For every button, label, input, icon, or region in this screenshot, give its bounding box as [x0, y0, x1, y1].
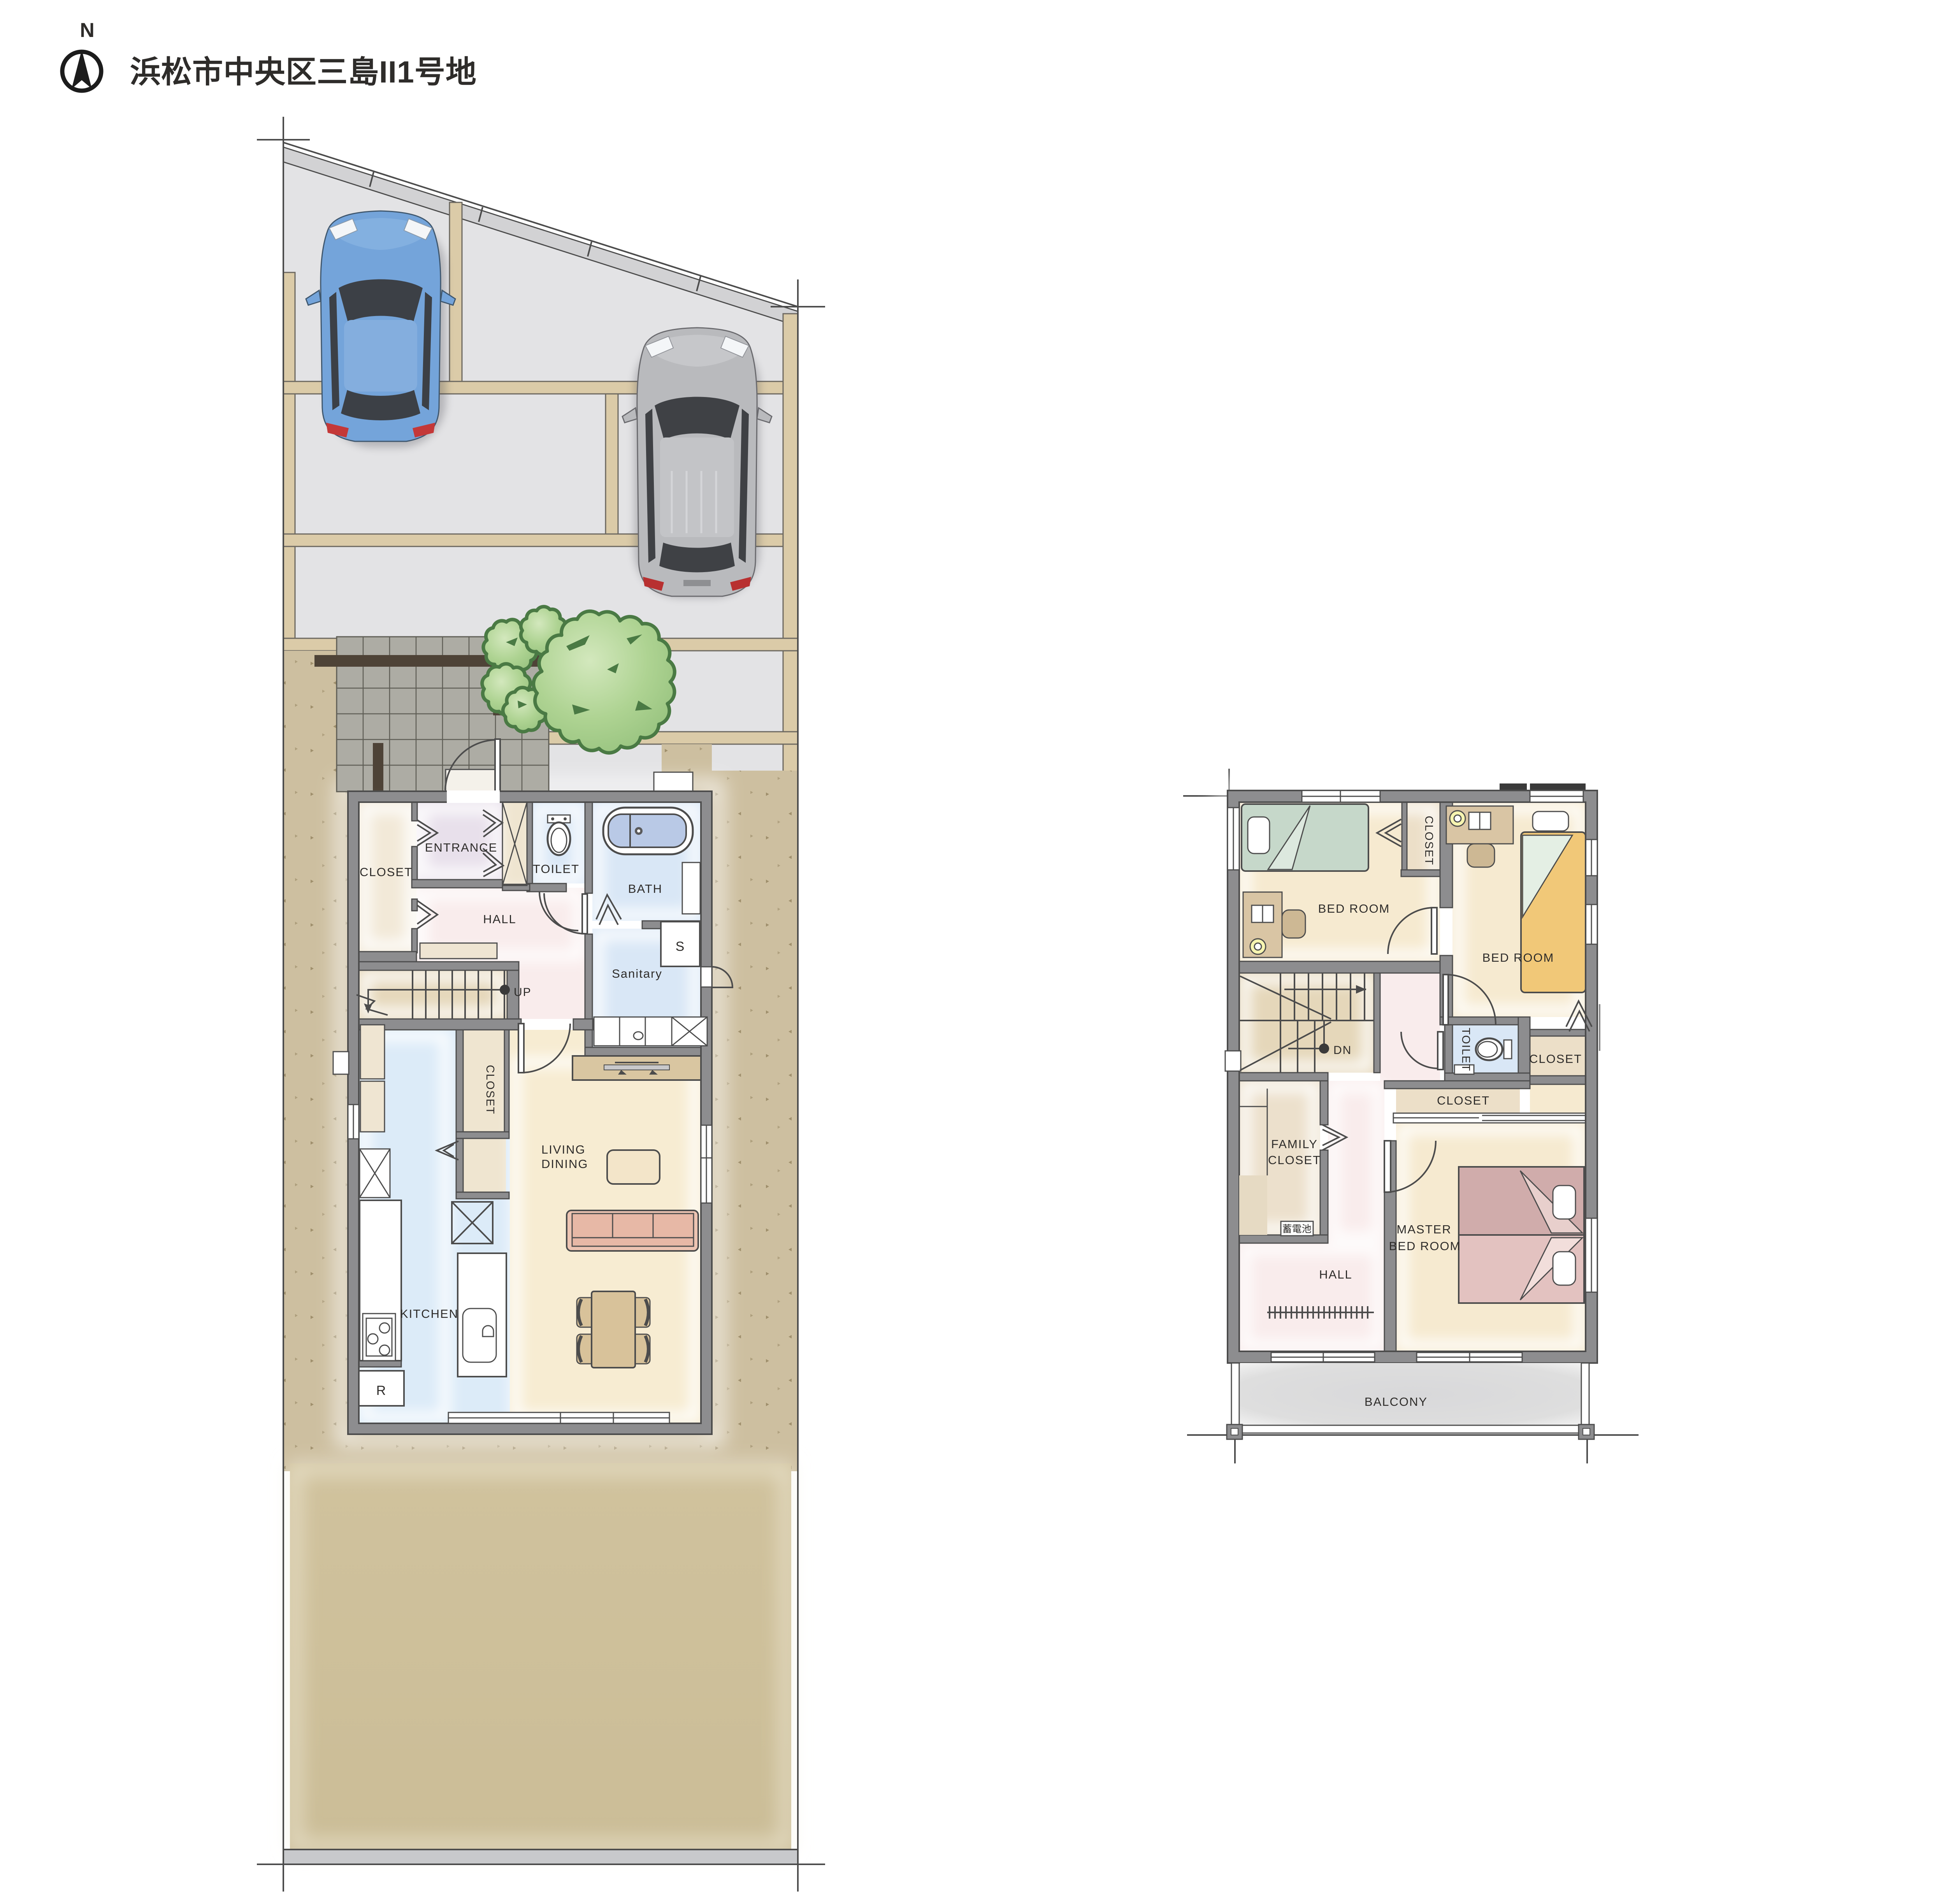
- svg-text:LIVING: LIVING: [541, 1143, 586, 1156]
- svg-text:CLOSET: CLOSET: [360, 865, 413, 879]
- svg-text:Sanitary: Sanitary: [612, 967, 662, 980]
- svg-text:TOILET: TOILET: [1459, 1028, 1472, 1072]
- svg-text:HALL: HALL: [1319, 1268, 1352, 1281]
- svg-text:ENTRANCE: ENTRANCE: [425, 841, 498, 854]
- svg-text:DINING: DINING: [541, 1157, 588, 1171]
- svg-text:R: R: [376, 1383, 387, 1398]
- svg-text:CLOSET: CLOSET: [1423, 816, 1435, 866]
- svg-text:BED ROOM: BED ROOM: [1318, 902, 1390, 915]
- svg-text:N: N: [80, 19, 95, 42]
- svg-text:FAMILY: FAMILY: [1271, 1137, 1318, 1151]
- svg-text:BATH: BATH: [628, 882, 662, 896]
- svg-text:TOILET: TOILET: [533, 862, 580, 876]
- svg-text:BALCONY: BALCONY: [1365, 1395, 1428, 1409]
- svg-text:S: S: [676, 939, 685, 954]
- svg-text:DN: DN: [1333, 1044, 1352, 1057]
- svg-text:CLOSET: CLOSET: [1529, 1052, 1582, 1066]
- svg-text:HALL: HALL: [483, 912, 516, 926]
- svg-text:CLOSET: CLOSET: [1268, 1153, 1321, 1167]
- svg-text:BED ROOM: BED ROOM: [1389, 1239, 1461, 1253]
- svg-text:UP: UP: [514, 986, 532, 999]
- svg-text:浜松市中央区三島II1号地: 浜松市中央区三島II1号地: [130, 54, 477, 89]
- svg-text:CLOSET: CLOSET: [1437, 1094, 1490, 1107]
- svg-text:KITCHEN: KITCHEN: [400, 1307, 458, 1321]
- svg-text:BED ROOM: BED ROOM: [1482, 951, 1554, 964]
- svg-text:CLOSET: CLOSET: [484, 1065, 496, 1115]
- svg-text:MASTER: MASTER: [1396, 1222, 1451, 1236]
- svg-text:蓄電池: 蓄電池: [1282, 1224, 1311, 1235]
